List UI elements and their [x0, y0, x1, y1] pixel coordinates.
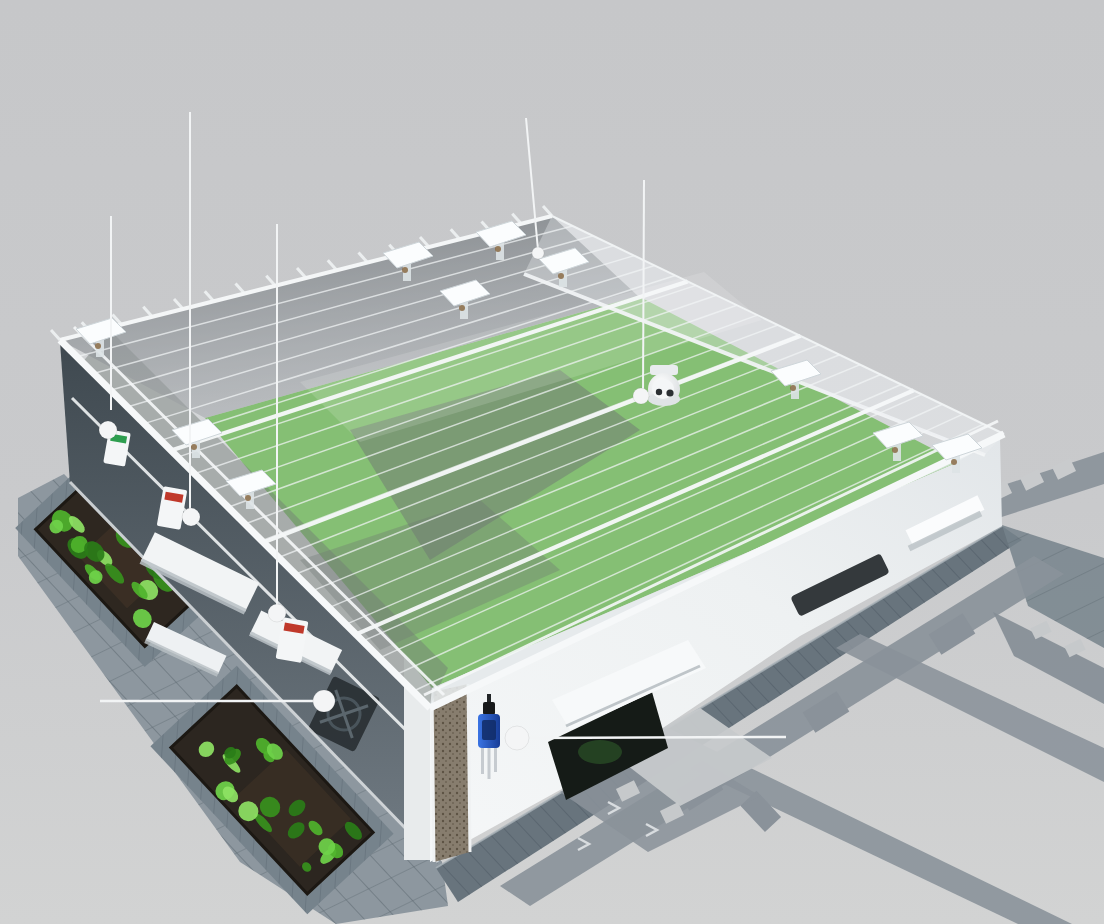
stone-pillar	[432, 684, 470, 862]
callout-dot-skylight	[532, 247, 544, 259]
callout-line-soil	[524, 737, 786, 738]
callout-line-camera	[643, 180, 644, 394]
callout-dot-co2	[182, 508, 200, 526]
greenhouse-illustration	[0, 0, 1104, 924]
callout-dot-air	[99, 421, 117, 439]
callout-dot-light	[268, 604, 286, 622]
greenhouse-diagram	[0, 0, 1104, 924]
callout-dot-camera	[633, 388, 649, 404]
callout-dot-soil	[505, 726, 529, 750]
camera-icon	[648, 365, 680, 406]
callout-dot-fan	[313, 690, 335, 712]
